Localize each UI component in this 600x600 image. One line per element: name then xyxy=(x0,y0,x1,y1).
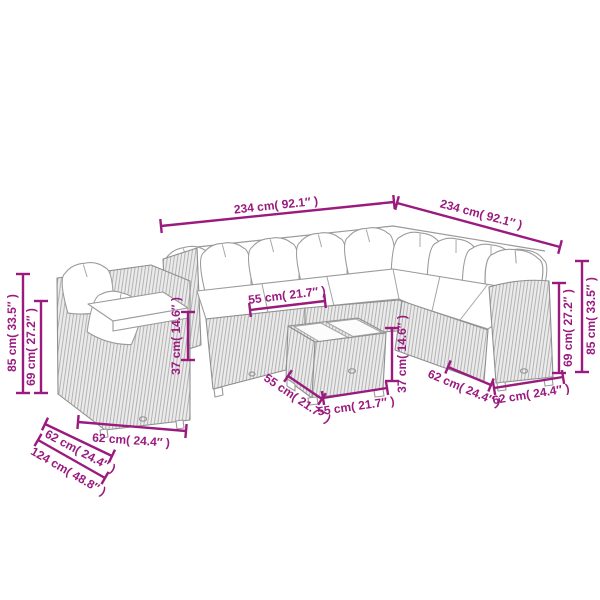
sofa-foot xyxy=(214,387,223,397)
diagram-canvas: 234 cm( 92.1″ ) 234 cm( 92.1″ ) 85 cm( 3… xyxy=(0,0,600,600)
dimension-label: 69 cm( 27.2″ ) xyxy=(24,308,38,386)
dimension-label: 85 cm( 33.5″ ) xyxy=(5,294,19,372)
dimension-label: 37 cm( 14.6″ ) xyxy=(169,297,183,375)
dimension-tick xyxy=(160,219,161,233)
dimension-tick xyxy=(185,424,186,438)
dimension-label: 69 cm( 27.2″ ) xyxy=(561,289,575,367)
table-side-front xyxy=(312,333,386,398)
dimension-label: 37 cm( 14.6″ ) xyxy=(395,315,409,393)
product-dimension-diagram: 234 cm( 92.1″ ) 234 cm( 92.1″ ) 85 cm( 3… xyxy=(0,0,600,600)
sofa-foot xyxy=(176,420,184,429)
sofa-right-arm xyxy=(489,280,553,383)
dimension-tick xyxy=(77,415,78,429)
dimension-label: 85 cm( 33.5″ ) xyxy=(584,277,598,355)
dimension-tick xyxy=(393,195,394,209)
